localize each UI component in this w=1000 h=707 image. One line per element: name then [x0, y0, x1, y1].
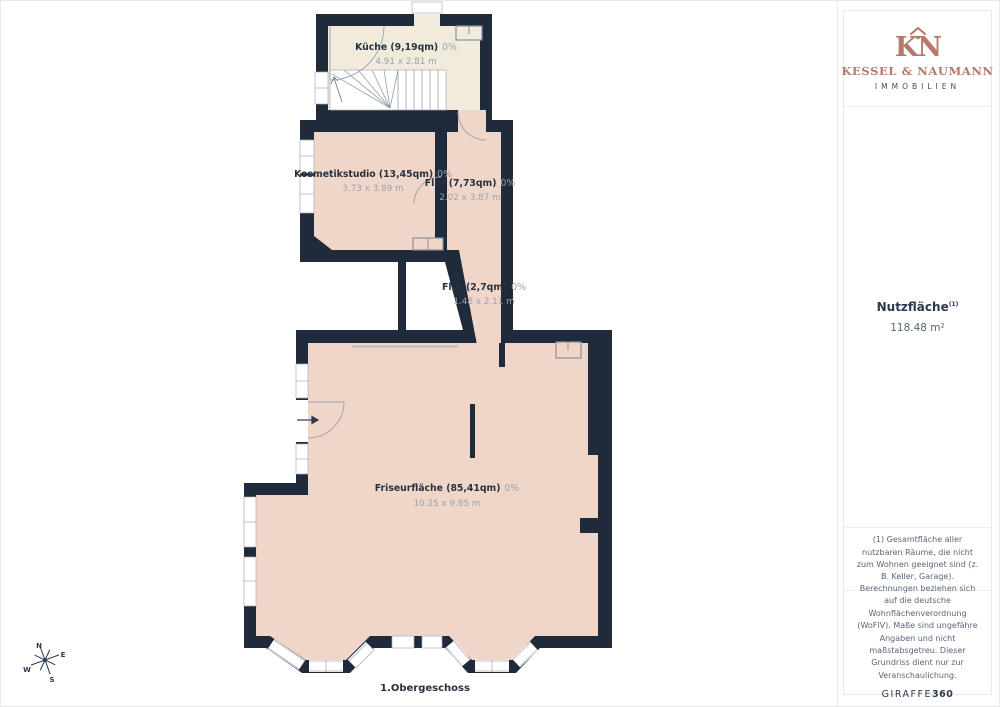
- footnote-text: (1) Gesamtfläche aller nutzbaren Räume, …: [856, 534, 979, 584]
- room-dims-kueche: 4.91 x 2.81 m: [375, 57, 436, 67]
- company-name: KESSEL & NAUMANN: [841, 64, 993, 78]
- window: [422, 636, 442, 648]
- room-dims-flur1: 2.02 x 3.87 m: [439, 193, 500, 203]
- svg-text:E: E: [61, 651, 66, 659]
- svg-text:N: N: [36, 642, 42, 650]
- window: [300, 176, 314, 213]
- disclaimer-text: Berechnungen beziehen sich auf die deuts…: [854, 583, 981, 682]
- room-label-friseur: Friseurfläche (85,41qm)0%: [375, 483, 520, 494]
- sidebar-separator: [837, 0, 838, 707]
- window: [392, 636, 414, 648]
- footnote-ref: (1): [949, 301, 959, 308]
- company-logo: KN KESSEL & NAUMANN IMMOBILIEN: [844, 11, 991, 107]
- area-summary: Nutzfläche(1) 118.48 m²: [844, 107, 991, 527]
- compass-icon: N E S W: [23, 641, 65, 684]
- room-dims-friseur: 10.25 x 9.85 m: [414, 499, 481, 509]
- room-dims-kosmetik: 3.73 x 3.89 m: [342, 184, 403, 194]
- room-flur1-floor: [447, 132, 501, 250]
- room-dims-flur2: 1.48 x 2.11 m: [453, 297, 514, 307]
- room-label-kueche: Küche (9,19qm)0%: [355, 42, 457, 53]
- kn-monogram-icon: KN: [885, 26, 951, 62]
- door-leaf-top: [412, 2, 442, 13]
- disclaimer-section: Berechnungen beziehen sich auf die deuts…: [844, 590, 991, 694]
- kueche-top-door-gap: [414, 14, 440, 27]
- svg-text:S: S: [49, 676, 54, 684]
- company-division: IMMOBILIEN: [875, 82, 960, 91]
- page: Küche (9,19qm)0% 4.91 x 2.81 m Kosmetiks…: [0, 0, 1000, 707]
- svg-text:W: W: [23, 666, 31, 674]
- kueche-flur-door-gap: [458, 110, 486, 132]
- footnote-section: (1) Gesamtfläche aller nutzbaren Räume, …: [844, 527, 991, 590]
- room-label-flur1: Flur (7,73qm)0%: [425, 178, 516, 189]
- area-label: Nutzfläche(1): [877, 300, 959, 314]
- info-sidebar: KN KESSEL & NAUMANN IMMOBILIEN Nutzfläch…: [843, 10, 992, 695]
- wall-stub: [580, 518, 598, 533]
- window: [244, 557, 256, 606]
- svg-text:KN: KN: [894, 32, 940, 62]
- wall-stub: [499, 343, 505, 367]
- floor-label: 1.Obergeschoss: [380, 683, 470, 694]
- room-label-flur2: Flur (2,7qm)0%: [442, 282, 526, 293]
- floorplan-svg: Küche (9,19qm)0% 4.91 x 2.81 m Kosmetiks…: [0, 0, 838, 707]
- area-value: 118.48 m²: [890, 322, 945, 334]
- partition-stub: [470, 404, 475, 458]
- giraffe360-logo: GIRAFFE360: [882, 689, 954, 700]
